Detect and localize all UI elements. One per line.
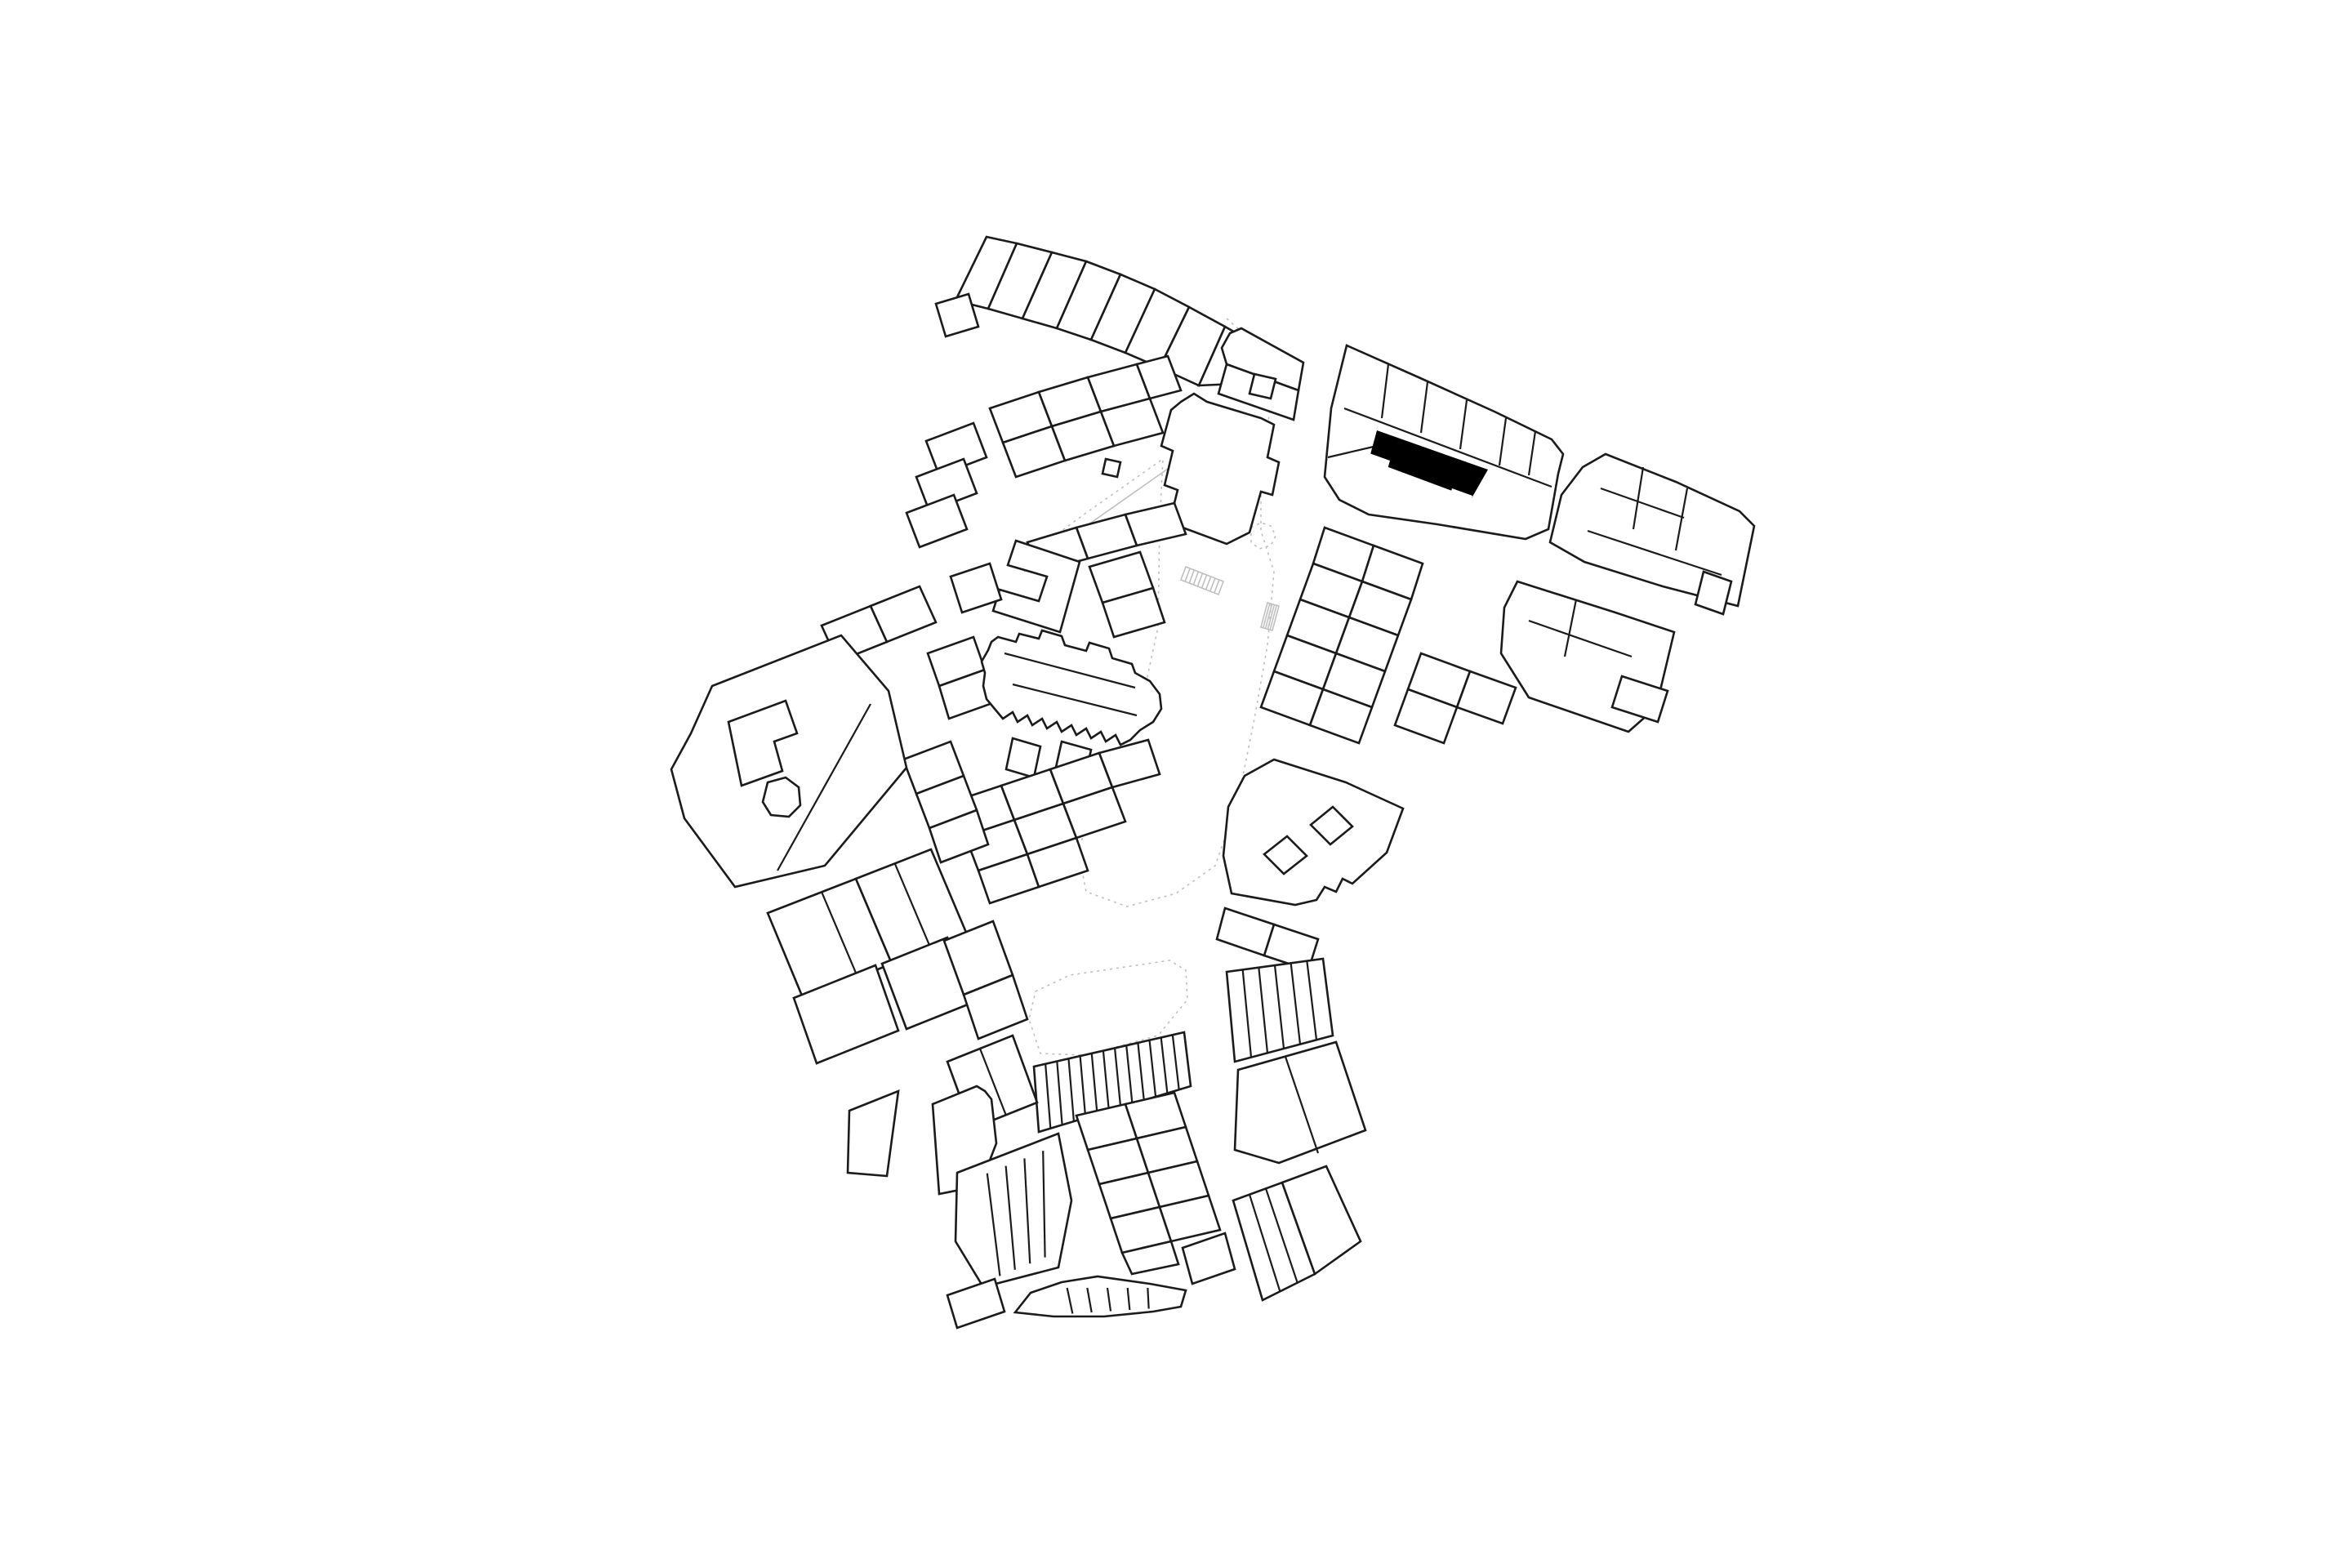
strip-row-dividers — [1150, 1040, 1156, 1097]
stair-hatch-rungs — [1185, 568, 1190, 581]
stair-hatch-rungs — [1202, 575, 1207, 588]
parcels-polygon — [947, 1279, 1004, 1328]
parcels-polygon — [951, 563, 1001, 612]
parcels-line — [1147, 1288, 1148, 1309]
strip-row-dividers — [1138, 1043, 1143, 1100]
strip-row-dividers — [1173, 1035, 1179, 1089]
site-plan-canvas — [0, 0, 2352, 1568]
parcels-polygon — [1249, 374, 1276, 399]
parcels-polygon — [1183, 1233, 1235, 1284]
stair-hatch-rungs — [1189, 570, 1194, 583]
strip-row-dividers — [1103, 1051, 1109, 1111]
parcels-polygon — [1102, 459, 1120, 477]
parcels — [671, 237, 1754, 1328]
stair-hatch-outline — [1181, 567, 1223, 595]
strip-row-dividers — [1126, 1045, 1132, 1103]
courtyard-parcel — [1223, 759, 1403, 905]
strip-row-dividers — [1161, 1037, 1168, 1093]
bastion-outline — [1251, 523, 1276, 549]
site-plan-svg — [0, 0, 2352, 1568]
project-block-outline — [1325, 345, 1563, 539]
wedge-parcel — [848, 1091, 898, 1176]
stair-hatch-rungs — [1210, 578, 1215, 591]
church-chapel — [1006, 738, 1040, 777]
strip-row-dividers — [1045, 1064, 1050, 1129]
parcels-polygon — [1125, 503, 1186, 546]
strip-row-dividers — [1057, 1062, 1062, 1125]
stair-hatch-rungs — [1197, 573, 1202, 586]
stair-hatch-rungs — [1206, 577, 1211, 590]
parcels-polygon — [906, 495, 967, 547]
market-square-outline — [1029, 960, 1187, 1055]
boat-block — [1015, 1276, 1186, 1316]
stair-hatch-rungs — [1214, 580, 1219, 593]
page: { "canvas": { "width": 2880, "height": 1… — [0, 0, 2352, 1568]
stair-hatch-rungs — [1193, 572, 1198, 585]
strip-row-dividers — [1115, 1048, 1120, 1107]
polygonal-building — [763, 777, 800, 817]
strip-row-dividers — [1068, 1058, 1073, 1121]
strip-row-dividers — [1080, 1056, 1086, 1118]
strip-row-dividers — [1092, 1053, 1098, 1115]
